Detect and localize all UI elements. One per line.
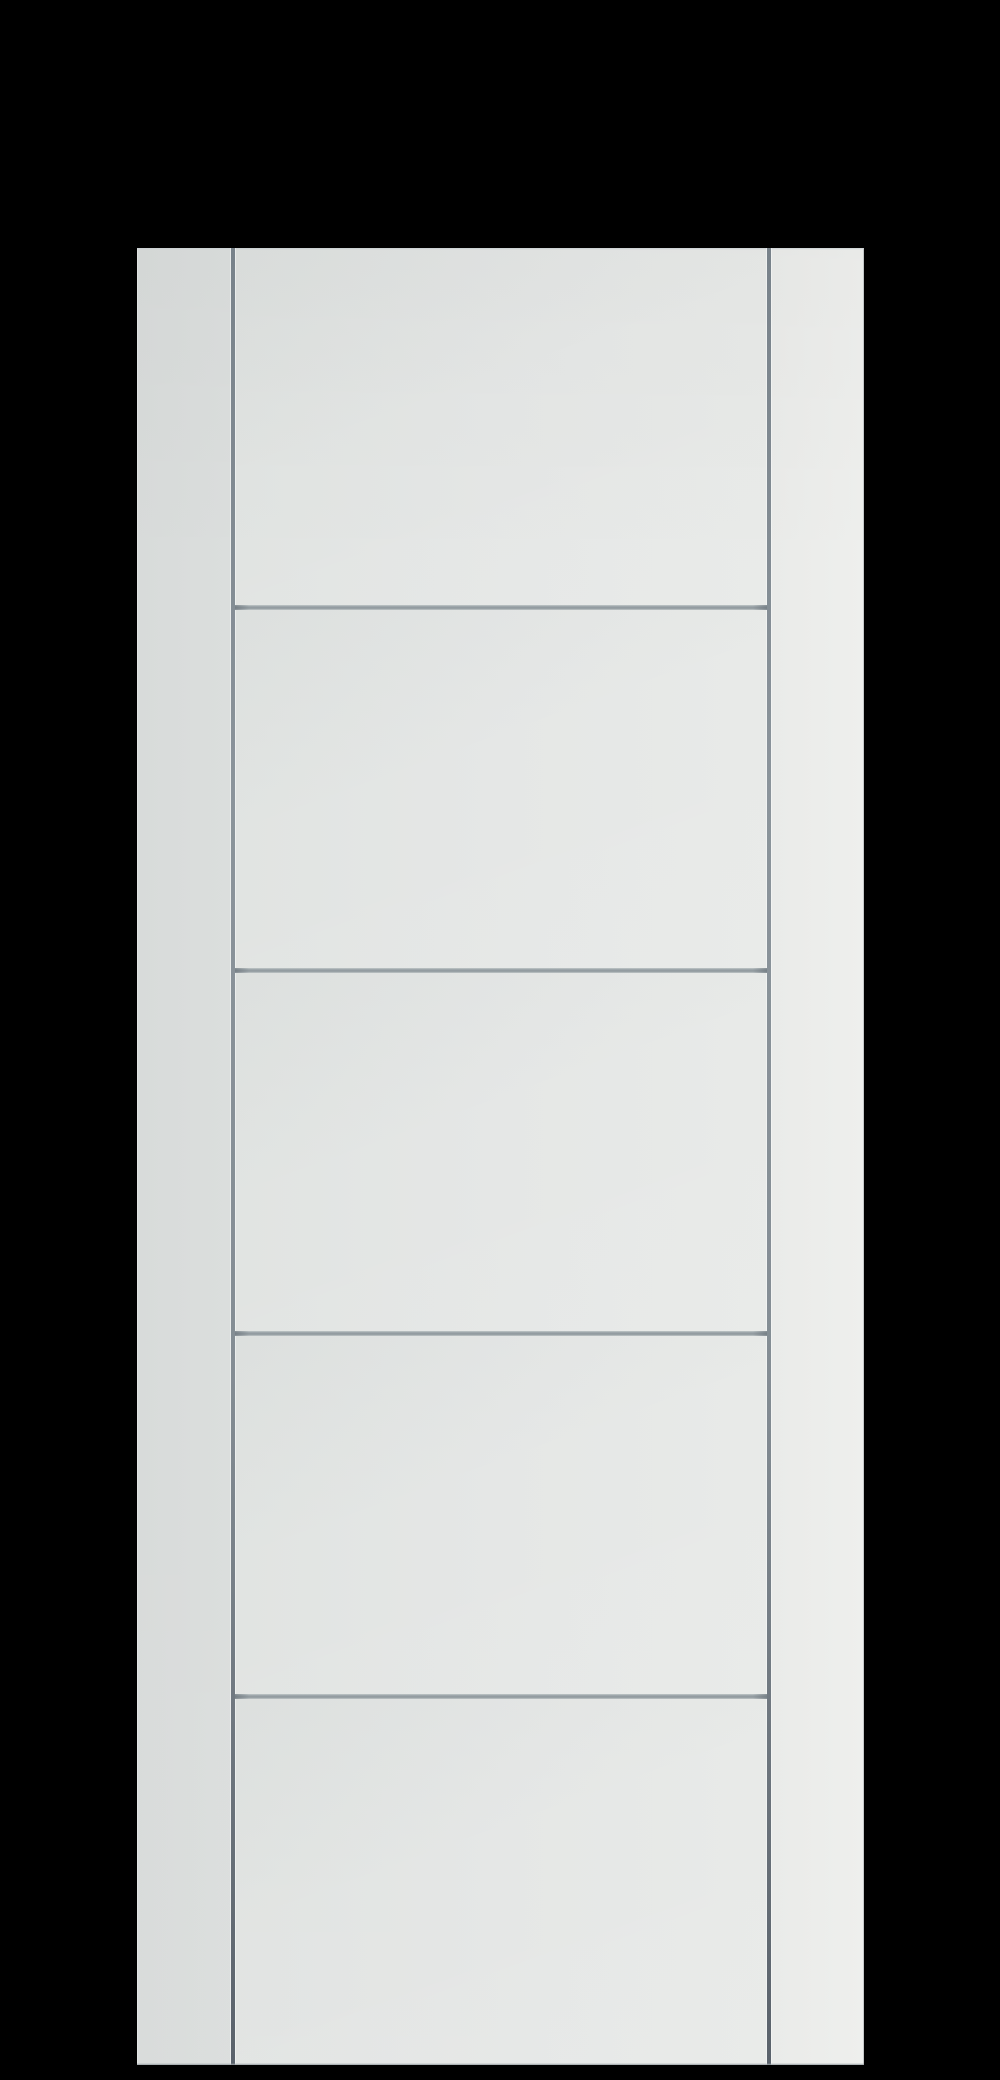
door-slab [137,248,864,2065]
door-panel [235,248,767,605]
door-panel [235,973,767,1331]
stile-groove-left [231,248,235,2065]
stile-groove-right [767,248,771,2065]
door-panel [235,1336,767,1694]
panel-groove [235,1694,767,1699]
panel-groove [235,1331,767,1336]
door-bottom-edge-shadow [137,2063,864,2065]
photo-backdrop [0,0,1000,2080]
panel-groove [235,968,767,973]
door-panel [235,610,767,968]
door-panel [235,1699,767,2065]
panel-groove [235,605,767,610]
